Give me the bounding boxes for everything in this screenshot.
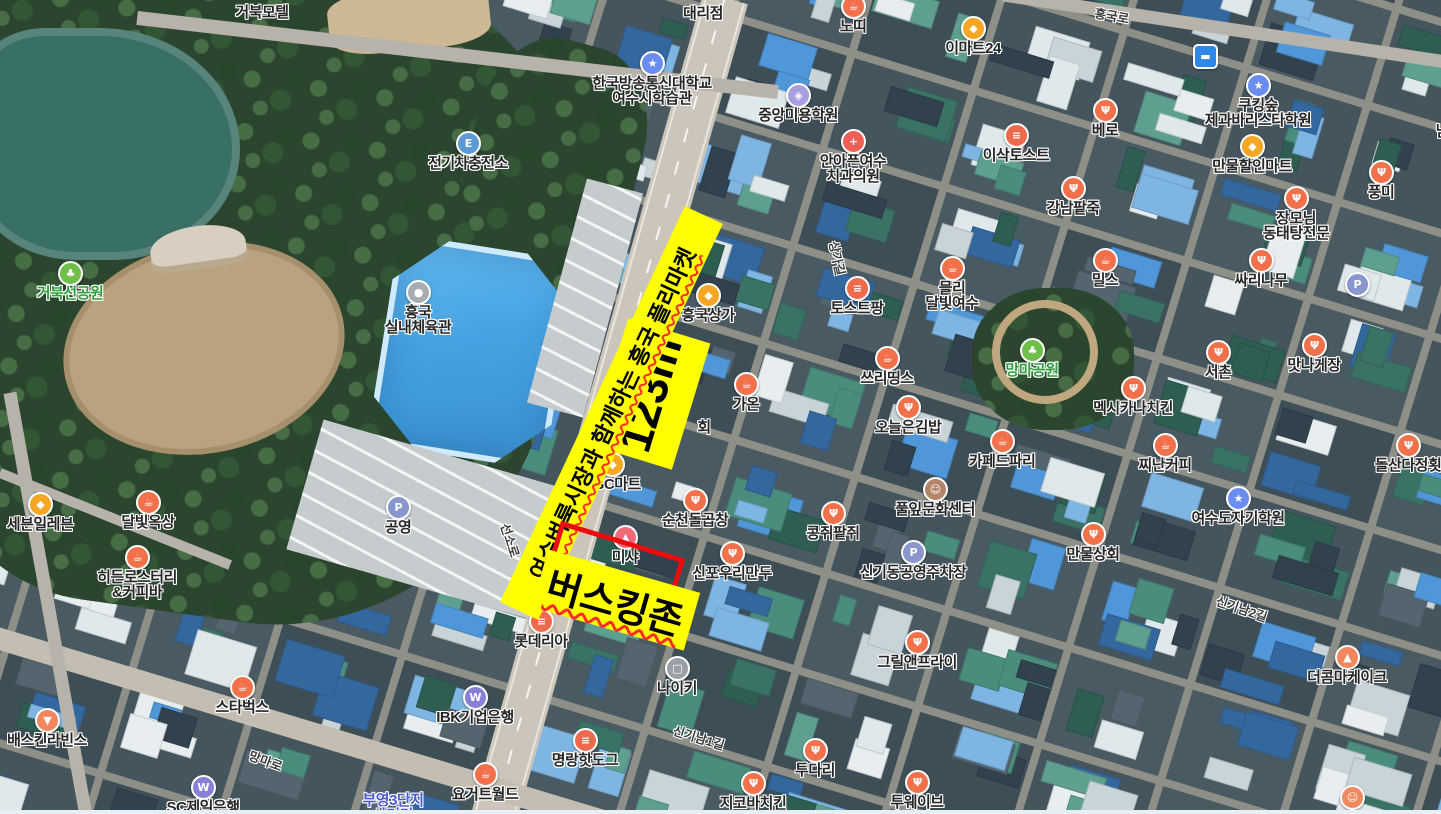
- store-icon[interactable]: ◆: [1240, 134, 1265, 159]
- map-poi-label[interactable]: 쓰리띵스: [860, 371, 913, 386]
- restaurant-icon[interactable]: Ψ: [1061, 176, 1086, 201]
- culture-icon[interactable]: ☺: [923, 477, 948, 502]
- map-poi-label[interactable]: 콩쥐팥쥐: [806, 526, 859, 541]
- map-poi-label[interactable]: 배스킨라빈스: [7, 733, 87, 748]
- map-poi-label[interactable]: 나이키: [657, 681, 697, 696]
- store-icon[interactable]: ◆: [696, 283, 721, 308]
- nike-icon[interactable]: □: [665, 656, 690, 681]
- map-poi-label[interactable]: IBK기업은행: [436, 710, 514, 725]
- map-poi-label[interactable]: 지코바치킨: [720, 796, 787, 811]
- map-poi-label[interactable]: 롯데리아: [514, 634, 567, 649]
- map-poi-label[interactable]: 동태탕전문: [1263, 226, 1330, 241]
- map-poi-label[interactable]: 찌난커피: [1138, 458, 1191, 473]
- cafe-icon[interactable]: ☕: [230, 675, 255, 700]
- map-poi-label[interactable]: 이삭토스트: [983, 148, 1050, 163]
- restaurant-icon[interactable]: Ψ: [1284, 186, 1309, 211]
- map-poi-label[interactable]: 남도: [1436, 124, 1441, 139]
- restaurant-icon[interactable]: Ψ: [1302, 333, 1327, 358]
- mangma-park-path: [992, 300, 1098, 404]
- restaurant-icon[interactable]: Ψ: [683, 488, 708, 513]
- map-poi-label[interactable]: 흥국: [405, 305, 432, 320]
- parking-icon[interactable]: P: [386, 495, 411, 520]
- restaurant-icon[interactable]: Ψ: [905, 770, 930, 795]
- cafe-icon[interactable]: ☕: [990, 429, 1015, 454]
- burger-icon[interactable]: ≡: [845, 276, 870, 301]
- map-poi-label[interactable]: 신기동공영주차장: [860, 565, 966, 580]
- park-icon[interactable]: ♣: [58, 261, 83, 286]
- map-poi-label[interactable]: 거북선공원: [37, 286, 104, 301]
- map-poi-label[interactable]: 망마공원: [1005, 363, 1058, 378]
- map-poi-label[interactable]: 밀스: [1092, 273, 1119, 288]
- map-poi-label[interactable]: 투웨이브: [890, 795, 943, 810]
- cake-icon[interactable]: ▲: [1335, 645, 1360, 670]
- restaurant-icon[interactable]: Ψ: [1396, 433, 1421, 458]
- restaurant-icon[interactable]: Ψ: [896, 395, 921, 420]
- map-poi-label[interactable]: 더콤마케이크: [1307, 670, 1387, 685]
- map-canvas[interactable]: 흥국로상가길선소로망마로신기남1길신기남2길 거북모텔대리점★한국방송통신대학교…: [0, 0, 1441, 814]
- store-icon[interactable]: ◆: [961, 16, 986, 41]
- map-poi-label[interactable]: 실내체육관: [385, 320, 452, 335]
- cafe-icon[interactable]: ☕: [1153, 433, 1178, 458]
- bank-icon[interactable]: W: [463, 685, 488, 710]
- map-poi-label[interactable]: 여수도자기학원: [1191, 511, 1284, 526]
- map-poi-label[interactable]: 만물상회: [1066, 547, 1119, 562]
- restaurant-icon[interactable]: Ψ: [1249, 248, 1274, 273]
- map-poi-label[interactable]: 흥국상가: [681, 308, 734, 323]
- burger-icon[interactable]: ≡: [573, 728, 598, 753]
- ev-icon[interactable]: E: [456, 131, 481, 156]
- map-poi-label[interactable]: 히든로스터리: [97, 570, 177, 585]
- park-icon[interactable]: ♣: [1020, 338, 1045, 363]
- bus-icon[interactable]: ▬: [1193, 44, 1218, 69]
- map-poi-label[interactable]: 부영3단지: [362, 793, 423, 808]
- restaurant-icon[interactable]: Ψ: [905, 630, 930, 655]
- map-poi-label[interactable]: 믈리: [939, 281, 966, 296]
- chicken-icon[interactable]: Ψ: [1121, 376, 1146, 401]
- burger-icon[interactable]: ≡: [1004, 123, 1029, 148]
- cafe-icon[interactable]: ☕: [734, 372, 759, 397]
- map-poi-label[interactable]: 베로: [1092, 123, 1119, 138]
- cafe-icon[interactable]: ☕: [940, 256, 965, 281]
- map-poi-label[interactable]: 중앙미용학원: [758, 108, 838, 123]
- map-poi-label[interactable]: 맛나게장: [1287, 358, 1340, 373]
- gym-icon[interactable]: ●: [406, 280, 431, 305]
- cafe-icon[interactable]: ☕: [136, 490, 161, 515]
- map-poi-label[interactable]: 투다리: [795, 763, 835, 778]
- restaurant-icon[interactable]: Ψ: [1369, 160, 1394, 185]
- map-poi-label[interactable]: 카페드파리: [969, 454, 1036, 469]
- map-poi-label[interactable]: 달빛옥상: [121, 515, 174, 530]
- map-poi-label[interactable]: 전기차충전소: [428, 156, 508, 171]
- cafe-icon[interactable]: ☕: [473, 762, 498, 787]
- map-poi-label[interactable]: 풀잎문화센터: [895, 502, 975, 517]
- map-poi-label[interactable]: 멕시카나치킨: [1093, 401, 1173, 416]
- cafe-icon[interactable]: ☕: [1093, 248, 1118, 273]
- map-poi-label[interactable]: 풍미: [1368, 185, 1395, 200]
- map-poi-label[interactable]: 요거트월드: [452, 787, 519, 802]
- parking-icon[interactable]: P: [901, 540, 926, 565]
- parking-icon[interactable]: P: [1345, 272, 1370, 297]
- map-poi-label[interactable]: 신포우리만두: [692, 566, 772, 581]
- map-poi-label[interactable]: 제과바리스타학원: [1205, 113, 1311, 128]
- map-poi-label[interactable]: 장모님: [1276, 211, 1316, 226]
- map-poi-label[interactable]: 토스트팡: [830, 301, 883, 316]
- map-poi-label[interactable]: 안아픈여수: [820, 154, 887, 169]
- map-poi-label[interactable]: 노띠: [840, 19, 867, 34]
- cafe-icon[interactable]: ☕: [875, 346, 900, 371]
- school-icon[interactable]: ★: [1226, 486, 1251, 511]
- map-poi-label[interactable]: 거북모텔: [235, 5, 288, 20]
- restaurant-icon[interactable]: Ψ: [1081, 522, 1106, 547]
- people-icon[interactable]: ☺: [1340, 785, 1365, 810]
- store-icon[interactable]: ◆: [28, 492, 53, 517]
- beauty-icon[interactable]: ◈: [786, 83, 811, 108]
- map-poi-label[interactable]: 강남팥죽: [1046, 201, 1099, 216]
- map-poi-label[interactable]: 순천돌곱창: [662, 513, 729, 528]
- school-icon[interactable]: ★: [1246, 73, 1271, 98]
- map-poi-label[interactable]: 스타벅스: [215, 700, 268, 715]
- map-poi-label[interactable]: 치과의원: [826, 169, 879, 184]
- map-poi-label[interactable]: 오늘은김밥: [875, 420, 942, 435]
- map-poi-label[interactable]: 쿠킹숲: [1238, 98, 1278, 113]
- restaurant-icon[interactable]: Ψ: [1206, 340, 1231, 365]
- map-poi-label[interactable]: 만물할인마트: [1212, 159, 1292, 174]
- map-poi-label[interactable]: 회: [697, 420, 710, 435]
- dessert-icon[interactable]: ▼: [35, 708, 60, 733]
- school-icon[interactable]: ★: [640, 51, 665, 76]
- map-poi-label[interactable]: 돌산다정횟: [1375, 458, 1441, 473]
- hospital-icon[interactable]: +: [841, 129, 866, 154]
- map-poi-label[interactable]: 가온: [733, 397, 760, 412]
- map-poi-label[interactable]: 이마트24: [945, 41, 1001, 56]
- cafe-icon[interactable]: ☕: [125, 545, 150, 570]
- restaurant-icon[interactable]: Ψ: [821, 501, 846, 526]
- map-poi-label[interactable]: 명랑핫도그: [552, 753, 619, 768]
- bank-icon[interactable]: W: [191, 775, 216, 800]
- map-poi-label[interactable]: 대리점: [683, 6, 723, 21]
- map-poi-label[interactable]: 그릴앤프라이: [877, 655, 957, 670]
- map-poi-label[interactable]: 한국방송통신대학교: [592, 76, 712, 91]
- map-poi-label[interactable]: 세븐일레븐: [7, 517, 74, 532]
- map-poi-label[interactable]: 싸리나무: [1234, 273, 1287, 288]
- map-poi-label[interactable]: 서촌: [1205, 365, 1232, 380]
- restaurant-icon[interactable]: Ψ: [803, 738, 828, 763]
- chicken-icon[interactable]: Ψ: [741, 771, 766, 796]
- restaurant-icon[interactable]: Ψ: [720, 541, 745, 566]
- restaurant-icon[interactable]: Ψ: [1093, 98, 1118, 123]
- bottom-edge-strip: [0, 810, 1441, 814]
- map-poi-label[interactable]: 여수시학습관: [612, 91, 692, 106]
- map-poi-label[interactable]: 달빛여수: [925, 296, 978, 311]
- map-poi-label[interactable]: &커피바: [112, 585, 162, 600]
- map-poi-label[interactable]: 공영: [385, 520, 412, 535]
